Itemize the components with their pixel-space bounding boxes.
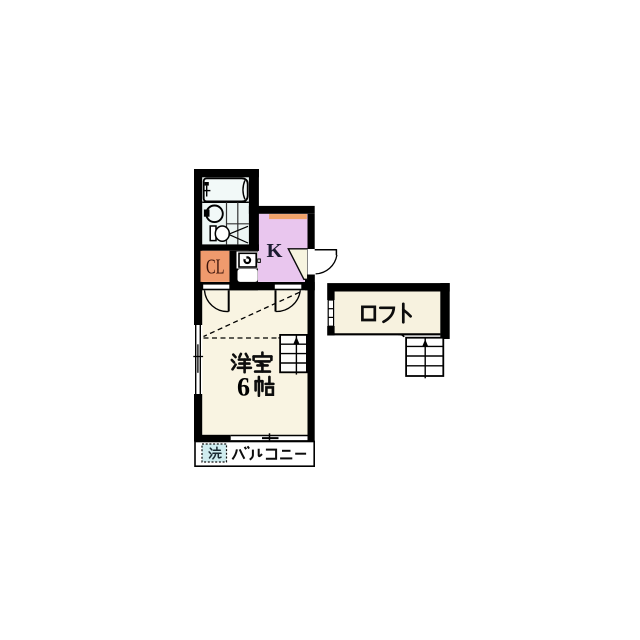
svg-text:K: K xyxy=(267,240,283,262)
svg-text:6: 6 xyxy=(237,372,250,401)
svg-text:CL: CL xyxy=(206,255,225,279)
